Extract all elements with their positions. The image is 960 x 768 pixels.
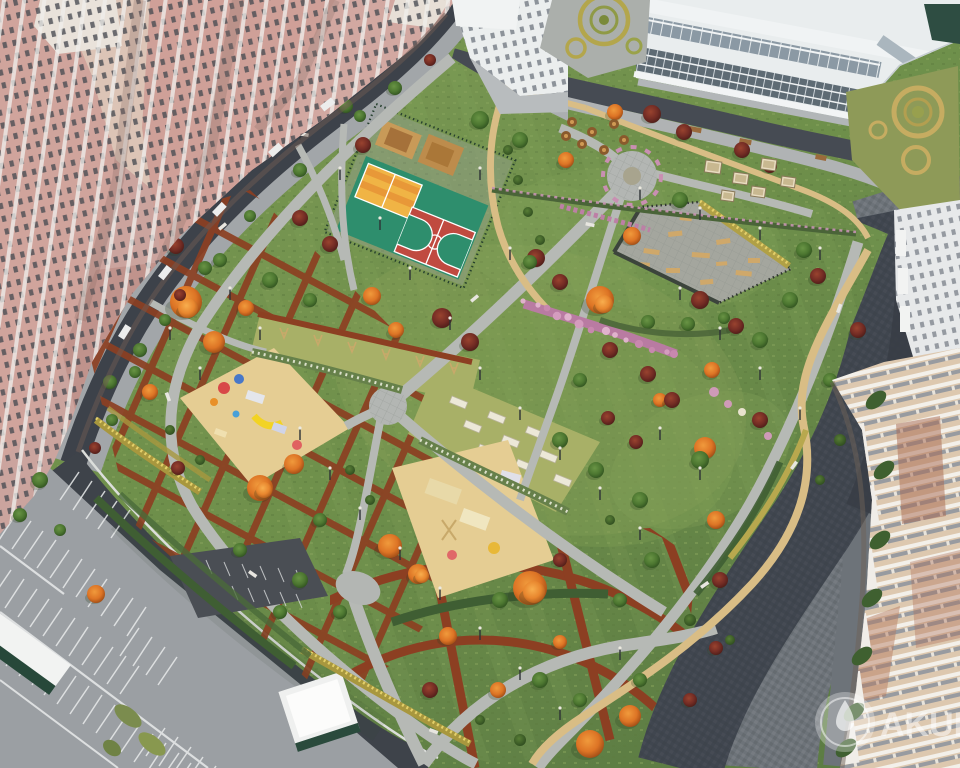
svg-text:AKULA: AKULA bbox=[880, 706, 960, 744]
